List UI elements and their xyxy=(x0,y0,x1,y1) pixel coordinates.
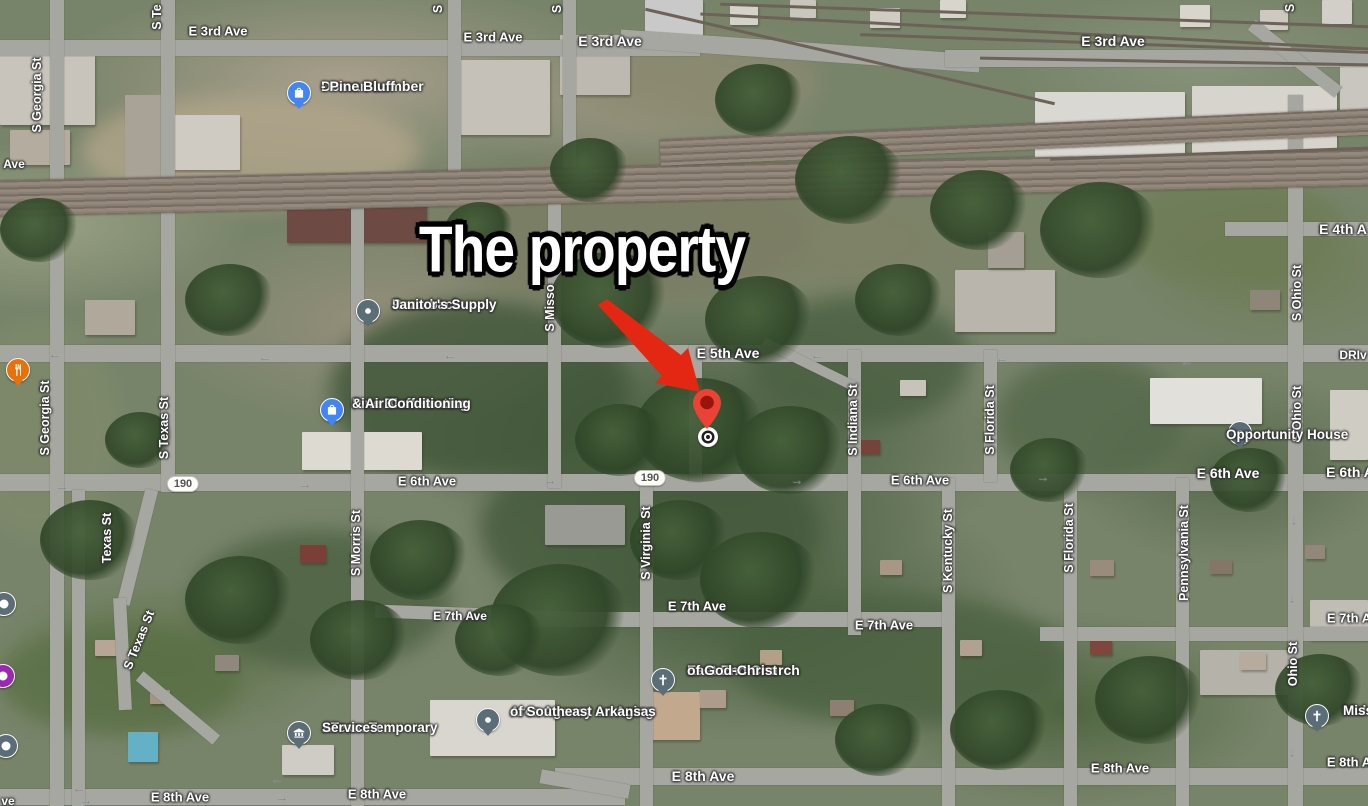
tree-canopy xyxy=(930,170,1030,250)
property-map-pin-icon[interactable] xyxy=(692,388,722,430)
road xyxy=(1040,627,1368,641)
building xyxy=(900,380,926,396)
road-label: DRIv xyxy=(1339,348,1366,362)
street-label: S xyxy=(1283,4,1297,12)
bank-icon xyxy=(292,726,306,740)
tree-canopy xyxy=(950,690,1050,770)
shopping-bag-poi-pin[interactable] xyxy=(320,398,344,422)
traffic-direction-arrow-icon: ← xyxy=(259,350,272,365)
building xyxy=(1305,545,1325,559)
building xyxy=(1250,290,1280,310)
building xyxy=(0,55,95,125)
building xyxy=(880,560,902,575)
tree-canopy xyxy=(445,202,515,258)
poi-pin-tail xyxy=(294,743,304,749)
building xyxy=(860,440,880,454)
poi-pin-tail xyxy=(1312,726,1322,732)
traffic-direction-arrow-icon: ← xyxy=(1181,354,1194,369)
tree-canopy xyxy=(185,264,275,336)
satellite-map[interactable]: E 3rd AveE 3rd AveE 3rd AveE 3rd AveE 4t… xyxy=(0,0,1368,806)
traffic-direction-arrow-icon: ← xyxy=(271,772,284,787)
dot-poi-pin[interactable] xyxy=(476,708,500,732)
building xyxy=(1322,0,1352,24)
tree-canopy xyxy=(1040,182,1160,278)
poi-pin-tail xyxy=(483,730,493,736)
tree-canopy xyxy=(835,704,925,776)
pin-dot-icon xyxy=(0,600,9,609)
tree-canopy xyxy=(40,500,140,580)
street-label: S Te xyxy=(150,4,164,29)
street-label: S Ohio St xyxy=(1290,265,1304,321)
traffic-direction-arrow-icon: → xyxy=(276,790,289,805)
selected-location-target-icon xyxy=(698,427,718,447)
tree-canopy xyxy=(550,138,630,202)
street-label: S Texas St xyxy=(157,397,171,459)
restaurant-poi-pin[interactable] xyxy=(6,358,30,382)
poi-pin-tail xyxy=(363,321,373,327)
road-label: E 6th Ave xyxy=(398,474,456,489)
pin-dot-icon xyxy=(2,742,11,751)
traffic-direction-arrow-icon: ↓ xyxy=(1289,591,1296,606)
street-label: S Morris St xyxy=(349,510,363,576)
pin-dot-icon xyxy=(0,672,8,681)
poi-pin-tail xyxy=(658,690,668,696)
restaurant-icon xyxy=(11,363,25,377)
building xyxy=(1330,390,1368,460)
tree-canopy xyxy=(185,556,295,644)
traffic-direction-arrow-icon: ↓ xyxy=(1289,745,1296,760)
building xyxy=(700,690,726,708)
dot-icon xyxy=(481,713,495,727)
road xyxy=(0,345,1368,362)
shopping-bag-icon xyxy=(325,403,339,417)
building xyxy=(1090,640,1112,655)
shopping-bag-poi-pin[interactable] xyxy=(287,81,311,105)
road-label: E 7th Ave xyxy=(433,609,487,623)
road-label: E 6th Ave xyxy=(1197,465,1260,481)
tree-canopy xyxy=(715,64,805,136)
traffic-direction-arrow-icon: → xyxy=(80,793,93,806)
edge-poi-pin[interactable] xyxy=(0,592,16,616)
shopping-bag-icon xyxy=(292,86,306,100)
street-label: S Kentucky St xyxy=(941,509,955,593)
road xyxy=(0,789,625,805)
traffic-direction-arrow-icon: ← xyxy=(444,348,457,363)
street-label: S Georgia St xyxy=(38,380,52,455)
building xyxy=(1180,5,1210,27)
building xyxy=(940,0,966,18)
traffic-direction-arrow-icon: → xyxy=(299,477,312,492)
cross-poi-pin[interactable] xyxy=(1305,704,1329,728)
building xyxy=(282,745,334,775)
poi-pin-tail xyxy=(294,103,304,109)
road-label: E 7th Ave xyxy=(855,618,913,633)
road-label: E 4th A xyxy=(1319,221,1367,237)
building xyxy=(955,270,1055,332)
street-label: Texas St xyxy=(100,513,114,564)
traffic-direction-arrow-icon: → xyxy=(544,473,557,488)
road-label: E 8th Ave xyxy=(1091,761,1149,776)
tree-canopy xyxy=(855,264,945,336)
tree-canopy xyxy=(370,520,470,600)
street-label: S Virginia St xyxy=(639,506,653,579)
traffic-direction-arrow-icon: ↓ xyxy=(1291,513,1298,528)
street-label: S Florida St xyxy=(1062,503,1076,572)
traffic-direction-arrow-icon: ← xyxy=(811,348,824,363)
road xyxy=(351,205,364,806)
street-label: S Florida St xyxy=(983,385,997,454)
street-label: S Misso xyxy=(543,284,557,331)
traffic-direction-arrow-icon: ← xyxy=(49,347,62,362)
road-label: ve xyxy=(1,794,14,806)
traffic-direction-arrow-icon: → xyxy=(791,473,804,488)
tree-canopy xyxy=(795,136,905,224)
road-label: E 5th Ave xyxy=(697,345,760,361)
street-label: Ohio St xyxy=(1286,642,1300,686)
building xyxy=(960,640,982,656)
building xyxy=(85,300,135,335)
building xyxy=(790,0,816,18)
cross-icon xyxy=(656,673,670,687)
tree-canopy xyxy=(1095,656,1205,744)
building xyxy=(125,95,163,180)
route-shield-190: 190 xyxy=(634,470,666,486)
building xyxy=(1240,652,1266,670)
building xyxy=(165,115,240,170)
road-label: E 7th Ave xyxy=(668,599,726,614)
road-label: E 3rd Ave xyxy=(463,30,522,45)
traffic-direction-arrow-icon: → xyxy=(1037,470,1050,485)
road xyxy=(50,0,64,806)
road-label: E 8th A xyxy=(1327,755,1368,770)
tree-canopy xyxy=(575,404,665,476)
tree-canopy xyxy=(310,600,410,680)
dot-icon xyxy=(361,304,375,318)
road-label: E 7th A xyxy=(1327,611,1368,626)
route-shield-190: 190 xyxy=(167,476,199,492)
tree-canopy xyxy=(0,198,80,262)
road-label: Ave xyxy=(3,157,25,171)
building xyxy=(545,505,625,545)
building xyxy=(95,640,117,656)
tree-canopy xyxy=(1010,438,1090,502)
building xyxy=(128,732,158,762)
cross-icon xyxy=(1310,709,1324,723)
building xyxy=(300,545,326,563)
road xyxy=(548,200,561,488)
road-label: E 3rd Ave xyxy=(1081,33,1145,49)
street-label: S Georgia St xyxy=(30,57,44,132)
building xyxy=(1090,560,1114,576)
road-label: E 6th A xyxy=(1326,464,1368,480)
street-label: S Indiana St xyxy=(846,384,860,456)
tree-canopy xyxy=(700,532,820,628)
road-label: E 8th Ave xyxy=(151,790,209,805)
building xyxy=(1210,560,1232,574)
road-label: E 3rd Ave xyxy=(188,24,247,39)
road-label: E 6th Ave xyxy=(891,473,949,488)
street-label: S xyxy=(550,5,564,13)
poi-pin-tail xyxy=(13,380,23,386)
street-label: S xyxy=(431,5,445,13)
cross-poi-pin[interactable] xyxy=(651,668,675,692)
dot-poi-pin[interactable] xyxy=(356,299,380,323)
road-label: E 3rd Ave xyxy=(578,33,642,49)
tree-canopy xyxy=(550,252,670,348)
traffic-direction-arrow-icon: → xyxy=(56,479,69,494)
bank-poi-pin[interactable] xyxy=(287,721,311,745)
road xyxy=(448,0,461,172)
edge-poi-pin[interactable] xyxy=(0,734,18,758)
building xyxy=(455,60,550,135)
poi-pin-tail xyxy=(1235,443,1245,449)
building xyxy=(1150,378,1262,424)
street-label: Pennsylvania St xyxy=(1177,505,1191,601)
building xyxy=(215,655,239,671)
traffic-direction-arrow-icon: ← xyxy=(996,351,1009,366)
road-label: E 8th Ave xyxy=(348,787,406,802)
poi-pin-tail xyxy=(327,420,337,426)
road-label: E 8th Ave xyxy=(672,768,735,784)
